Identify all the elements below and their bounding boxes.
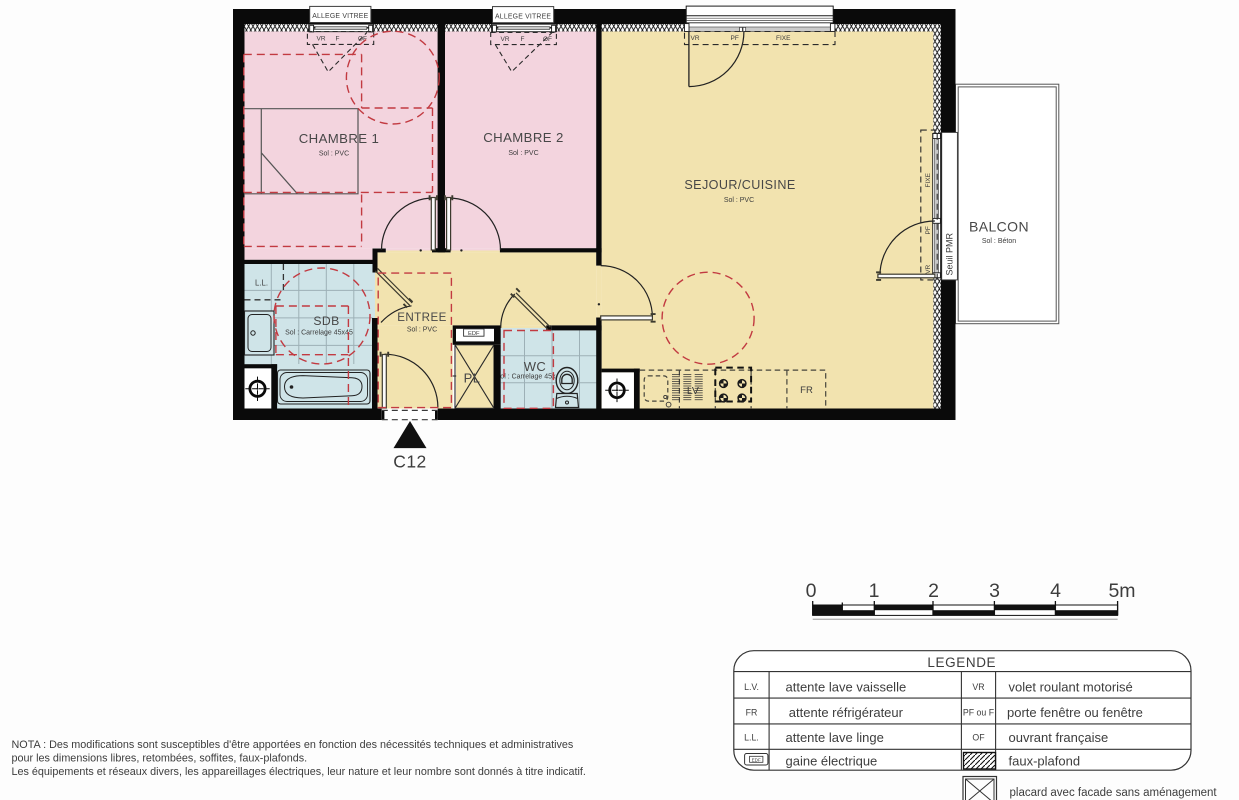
svg-text:SEJOUR/CUISINE: SEJOUR/CUISINE (684, 178, 795, 192)
svg-text:3: 3 (989, 580, 1000, 602)
svg-text:pour les dimensions libres, re: pour les dimensions libres, retombées, s… (12, 753, 308, 765)
svg-text:Sol : PVC: Sol : PVC (508, 150, 538, 157)
svg-text:F: F (336, 35, 340, 42)
svg-text:ALLEGE VITREE: ALLEGE VITREE (495, 13, 551, 20)
svg-text:FR: FR (800, 385, 813, 396)
svg-text:4: 4 (1050, 580, 1061, 602)
svg-text:5m: 5m (1108, 580, 1135, 602)
svg-text:F: F (521, 36, 525, 43)
svg-text:C12: C12 (393, 452, 427, 472)
svg-text:VR: VR (691, 35, 700, 42)
svg-text:Sol : Carrelage 45x45: Sol : Carrelage 45x45 (285, 329, 353, 336)
svg-text:OF: OF (972, 732, 985, 742)
svg-text:OF: OF (358, 35, 367, 42)
svg-text:attente réfrigérateur: attente réfrigérateur (789, 705, 904, 720)
svg-text:attente lave linge: attente lave linge (786, 730, 884, 745)
svg-text:Seuil PMR: Seuil PMR (945, 232, 955, 275)
svg-text:LEGENDE: LEGENDE (927, 655, 996, 670)
svg-text:FIXE: FIXE (925, 172, 932, 187)
svg-text:FIXE: FIXE (776, 35, 791, 42)
svg-text:SDB: SDB (313, 314, 339, 328)
svg-text:gaine électrique: gaine électrique (786, 754, 878, 769)
svg-text:BALCON: BALCON (969, 219, 1029, 235)
svg-text:CHAMBRE 1: CHAMBRE 1 (299, 131, 380, 146)
svg-text:0: 0 (806, 580, 817, 602)
svg-text:PF: PF (731, 35, 739, 42)
svg-text:attente lave vaisselle: attente lave vaisselle (786, 680, 907, 695)
svg-text:NOTA : Des modifications sont: NOTA : Des modifications sont susceptibl… (12, 739, 574, 751)
svg-text:2: 2 (928, 580, 939, 602)
svg-text:EDF: EDF (752, 757, 761, 762)
svg-text:Sol : Béton: Sol : Béton (982, 238, 1016, 245)
svg-text:LV: LV (687, 385, 699, 397)
svg-text:PF: PF (925, 226, 932, 234)
svg-text:VR: VR (317, 35, 326, 42)
svg-text:volet roulant motorisé: volet roulant motorisé (1009, 680, 1133, 695)
svg-text:placard avec facade sans aména: placard avec facade sans aménagement (1010, 787, 1218, 799)
svg-text:L.L.: L.L. (255, 279, 268, 288)
svg-text:VR: VR (501, 36, 510, 43)
svg-text:Sol : PVC: Sol : PVC (407, 326, 437, 333)
svg-text:ouvrant française: ouvrant française (1009, 730, 1109, 745)
svg-text:CHAMBRE 2: CHAMBRE 2 (483, 130, 564, 145)
svg-text:Les équipements et réseaux div: Les équipements et réseaux divers, les a… (12, 766, 586, 778)
svg-text:L.L.: L.L. (744, 732, 759, 742)
svg-text:OF: OF (543, 36, 552, 43)
svg-text:EDF: EDF (468, 331, 480, 337)
svg-text:WC: WC (524, 359, 546, 374)
svg-text:VR: VR (972, 682, 984, 692)
svg-text:PF ou F: PF ou F (963, 707, 995, 717)
svg-text:L.V.: L.V. (744, 682, 759, 692)
svg-text:ALLEGE VITREE: ALLEGE VITREE (312, 13, 368, 20)
svg-text:faux-plafond: faux-plafond (1009, 754, 1081, 769)
svg-text:Sol : PVC: Sol : PVC (724, 197, 754, 204)
svg-text:1: 1 (869, 580, 880, 602)
svg-text:ENTREE: ENTREE (397, 311, 446, 324)
svg-text:VR: VR (925, 264, 932, 273)
svg-text:porte fenêtre ou fenêtre: porte fenêtre ou fenêtre (1007, 705, 1143, 720)
svg-text:PL: PL (464, 371, 481, 386)
svg-text:Sol : PVC: Sol : PVC (319, 150, 349, 157)
svg-text:FR: FR (746, 707, 758, 717)
